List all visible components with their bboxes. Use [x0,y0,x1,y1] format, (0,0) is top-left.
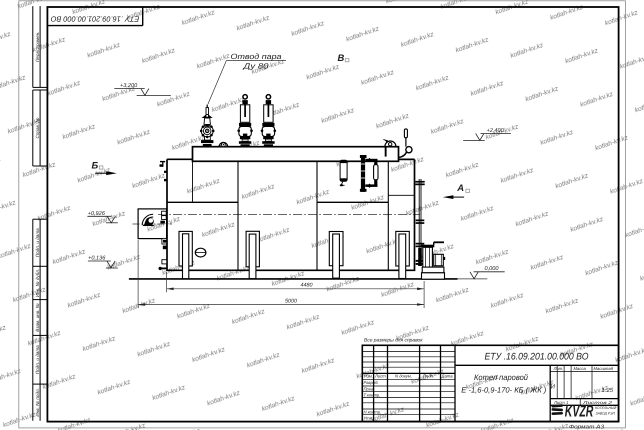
svg-text:И: И [551,383,556,390]
svg-text:КОТЕЛЬНЫЙ: КОТЕЛЬНЫЙ [595,405,617,410]
svg-text:Масса: Масса [574,366,587,371]
svg-text:ЗАВОД РЭП: ЗАВОД РЭП [596,411,616,415]
svg-text:5000: 5000 [285,298,297,304]
svg-text:Все размеры для справок: Все размеры для справок [364,337,423,343]
svg-text:А: А [456,182,464,193]
svg-text:0,000: 0,000 [485,266,500,272]
svg-text:В: В [338,52,345,63]
svg-text:Подп. и дата: Подп. и дата [35,228,40,257]
svg-text:Подп.: Подп. [423,374,434,379]
svg-text:Масштаб: Масштаб [594,366,614,371]
svg-text:4480: 4480 [301,283,313,289]
svg-text:Котел паровой: Котел паровой [474,373,529,382]
svg-text:Формат А3: Формат А3 [569,424,605,430]
svg-text:Справ. №: Справ. № [35,118,40,139]
svg-text:Н.контр.: Н.контр. [364,409,382,414]
svg-text:Перв. примен.: Перв. примен. [35,31,40,62]
svg-text:Б: Б [92,160,99,171]
svg-text:Подп. и дата: Подп. и дата [35,345,40,374]
svg-text:ЕТУ .16.09.201.00.000 ВО: ЕТУ .16.09.201.00.000 ВО [485,352,589,363]
svg-text:Взам. инв. №: Взам. инв. № [35,303,40,331]
svg-text:+0,136: +0,136 [88,256,106,262]
svg-text:Лист: Лист [374,374,386,379]
svg-text:KVZR: KVZR [565,402,594,420]
svg-text:Разраб.: Разраб. [364,380,379,385]
svg-text:Дата: Дата [441,374,454,379]
svg-text:+0,926: +0,926 [88,211,106,217]
svg-text:N докум.: N докум. [395,374,412,379]
svg-text:1:25: 1:25 [601,387,613,394]
svg-text:Изм.: Изм. [364,374,373,379]
svg-text:+3,200: +3,200 [120,83,138,89]
svg-text:Утв.: Утв. [364,415,374,420]
svg-text:Т.контр.: Т.контр. [364,392,381,397]
svg-text:Отвод пара: Отвод пара [231,52,282,61]
svg-text:Инв. № подл.: Инв. № подл. [35,388,40,417]
svg-text:Пров.: Пров. [364,386,375,391]
svg-text:ЕТУ .16.09.201.00.000 ВО: ЕТУ .16.09.201.00.000 ВО [51,15,140,24]
svg-text:+2,400: +2,400 [487,128,505,134]
svg-text:Е -1,6-0,9-170- КБ ( ЖК ): Е -1,6-0,9-170- КБ ( ЖК ) [461,386,546,395]
svg-text:Ду 80: Ду 80 [242,62,269,71]
svg-text:Инв. № дубл.: Инв. № дубл. [35,269,40,297]
svg-text:Лит.: Лит. [553,366,564,371]
